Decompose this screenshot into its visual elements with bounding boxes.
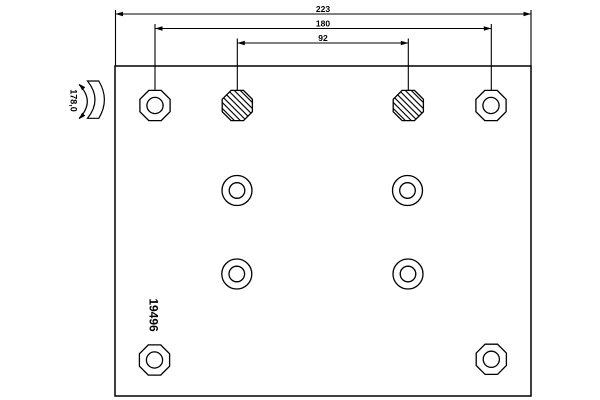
svg-text:19496: 19496 [147,298,161,332]
svg-text:223: 223 [316,4,330,14]
svg-text:92: 92 [318,33,328,43]
svg-text:178,0: 178,0 [69,89,79,112]
svg-text:180: 180 [316,19,330,29]
